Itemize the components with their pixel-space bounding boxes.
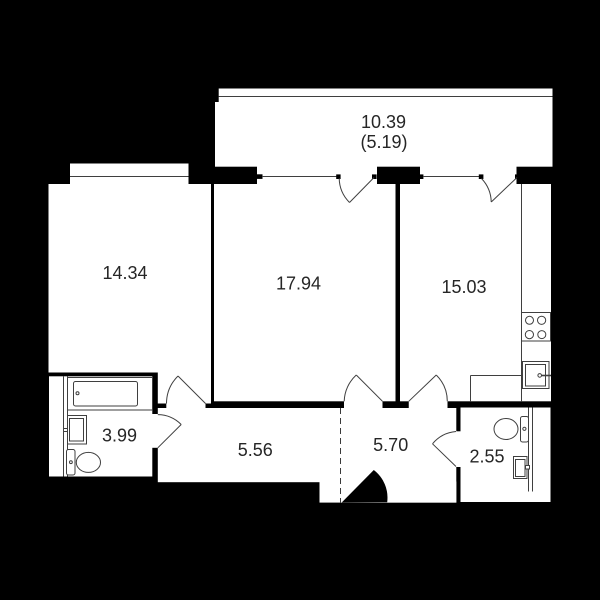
svg-text:17.94: 17.94 <box>276 274 321 294</box>
svg-text:10.39: 10.39 <box>361 112 406 132</box>
svg-text:14.34: 14.34 <box>102 263 147 283</box>
svg-text:5.70: 5.70 <box>373 435 408 455</box>
svg-text:15.03: 15.03 <box>441 277 486 297</box>
svg-text:2.55: 2.55 <box>469 447 504 467</box>
svg-text:3.99: 3.99 <box>102 426 137 446</box>
svg-text:5.56: 5.56 <box>238 440 273 460</box>
svg-text:(5.19): (5.19) <box>360 132 407 152</box>
